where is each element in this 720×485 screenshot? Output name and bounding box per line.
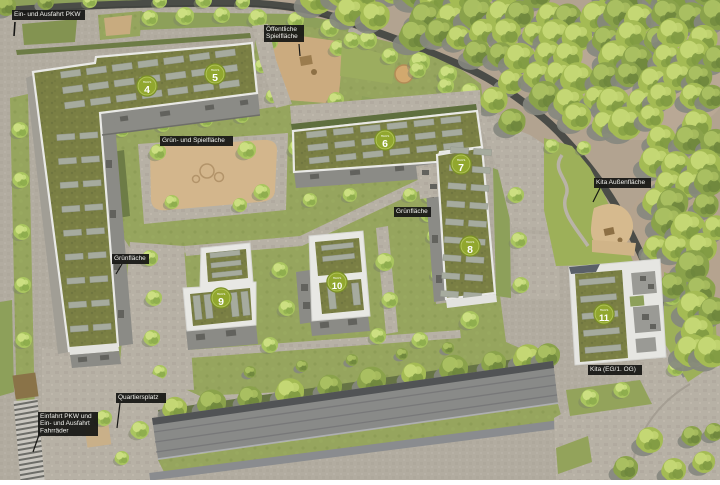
svg-text:5: 5 bbox=[212, 72, 218, 84]
svg-text:7: 7 bbox=[458, 162, 464, 174]
svg-text:9: 9 bbox=[218, 296, 224, 308]
svg-text:Kita Außenfläche: Kita Außenfläche bbox=[596, 179, 646, 186]
svg-text:8: 8 bbox=[467, 244, 473, 256]
svg-text:Ein- und Ausfahrt: Ein- und Ausfahrt bbox=[40, 420, 90, 427]
svg-text:6: 6 bbox=[382, 138, 388, 150]
svg-text:HAUS: HAUS bbox=[600, 308, 609, 312]
svg-text:HAUS: HAUS bbox=[333, 276, 342, 280]
svg-text:10: 10 bbox=[332, 281, 343, 292]
svg-text:Öffentliche: Öffentliche bbox=[266, 25, 297, 33]
svg-text:Einfahrt PKW und: Einfahrt PKW und bbox=[40, 413, 92, 420]
svg-text:Grünfläche: Grünfläche bbox=[114, 255, 146, 262]
svg-text:4: 4 bbox=[144, 84, 150, 96]
svg-text:Quartiersplatz: Quartiersplatz bbox=[118, 394, 158, 401]
svg-text:11: 11 bbox=[599, 313, 610, 324]
svg-text:Spielfläche: Spielfläche bbox=[266, 33, 298, 40]
svg-text:Grün- und Spielfläche: Grün- und Spielfläche bbox=[162, 137, 225, 144]
svg-text:Ein- und Ausfahrt PKW: Ein- und Ausfahrt PKW bbox=[14, 11, 81, 18]
svg-text:Kita (EG/1. OG): Kita (EG/1. OG) bbox=[590, 366, 636, 373]
svg-text:Fahrräder: Fahrräder bbox=[40, 428, 69, 435]
svg-text:Grünfläche: Grünfläche bbox=[396, 208, 428, 215]
